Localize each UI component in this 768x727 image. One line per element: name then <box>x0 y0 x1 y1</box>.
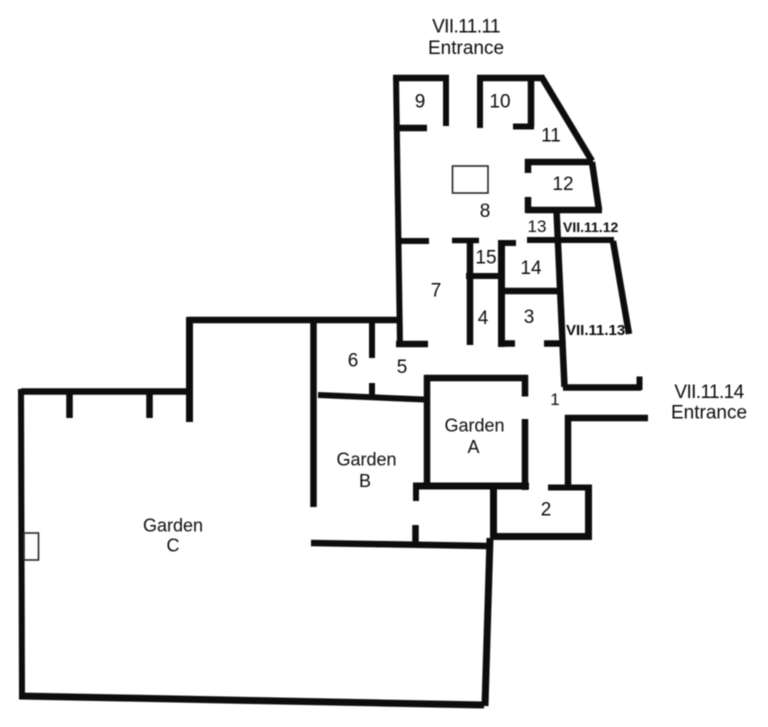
svg-text:7: 7 <box>431 281 442 302</box>
svg-text:Entrance: Entrance <box>428 38 504 59</box>
svg-text:6: 6 <box>348 351 359 372</box>
svg-text:Garden: Garden <box>336 450 396 470</box>
svg-text:9: 9 <box>415 92 426 113</box>
svg-text:Garden: Garden <box>143 516 203 536</box>
svg-text:15: 15 <box>475 248 496 269</box>
svg-text:C: C <box>167 536 180 556</box>
svg-text:5: 5 <box>397 357 408 378</box>
svg-text:Garden: Garden <box>444 416 504 436</box>
svg-text:3: 3 <box>524 307 535 328</box>
svg-text:14: 14 <box>520 258 542 279</box>
svg-text:10: 10 <box>489 92 510 113</box>
svg-text:VII.11.13: VII.11.13 <box>566 322 625 339</box>
svg-text:11: 11 <box>541 126 561 147</box>
svg-text:A: A <box>467 437 479 457</box>
svg-text:B: B <box>359 471 371 491</box>
svg-text:1: 1 <box>550 390 559 409</box>
svg-text:VII.11.12: VII.11.12 <box>563 219 618 235</box>
svg-text:4: 4 <box>478 308 489 329</box>
svg-text:VII.11.14: VII.11.14 <box>674 382 744 403</box>
svg-text:8: 8 <box>480 201 491 222</box>
svg-text:VII.11.11: VII.11.11 <box>432 17 500 38</box>
svg-text:Entrance: Entrance <box>671 403 747 424</box>
svg-text:12: 12 <box>552 174 573 195</box>
svg-text:13: 13 <box>528 217 547 236</box>
svg-text:2: 2 <box>541 500 552 521</box>
